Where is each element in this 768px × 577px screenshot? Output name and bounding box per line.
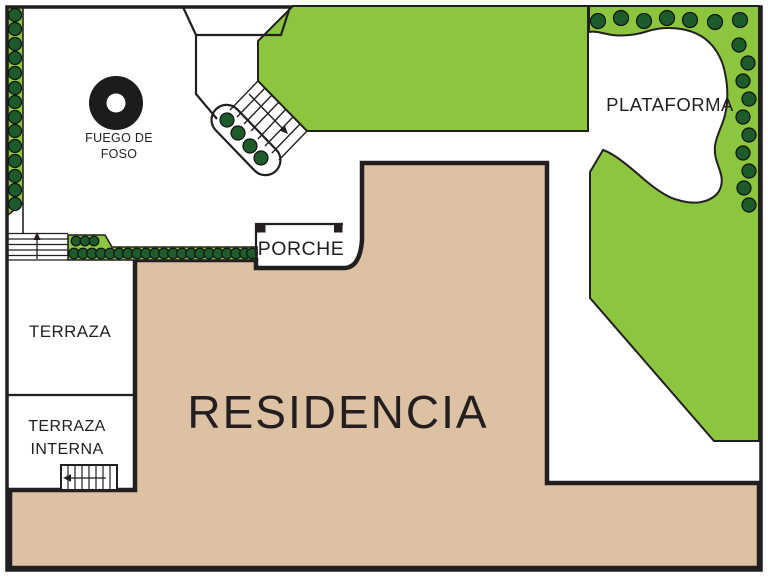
inner-terrace-label-line2: INTERNA	[30, 441, 103, 458]
residence-label: RESIDENCIA	[187, 386, 488, 438]
lawn-top-area	[258, 6, 588, 131]
hedge-row-long	[69, 248, 258, 259]
fire-pit-label-line1: FUEGO DE	[85, 131, 153, 145]
site-plan: FUEGO DE FOSO PLATAFORMA PORCHE TERRAZA …	[0, 0, 768, 577]
inner-terrace-label-line1: TERRAZA	[28, 418, 105, 435]
porch-label: PORCHE	[258, 238, 344, 260]
stairs-inner-terrace-icon	[61, 465, 117, 490]
fire-pit-icon	[89, 76, 143, 130]
terrace-label: TERRAZA	[29, 322, 111, 341]
hedge-row-short	[71, 236, 99, 246]
site-plan-canvas: FUEGO DE FOSO PLATAFORMA PORCHE TERRAZA …	[0, 0, 768, 577]
fire-pit-label-line2: FOSO	[101, 147, 138, 161]
platform-label: PLATAFORMA	[606, 94, 734, 115]
porch-column-icon	[257, 224, 266, 233]
porch-column-icon	[334, 224, 343, 233]
